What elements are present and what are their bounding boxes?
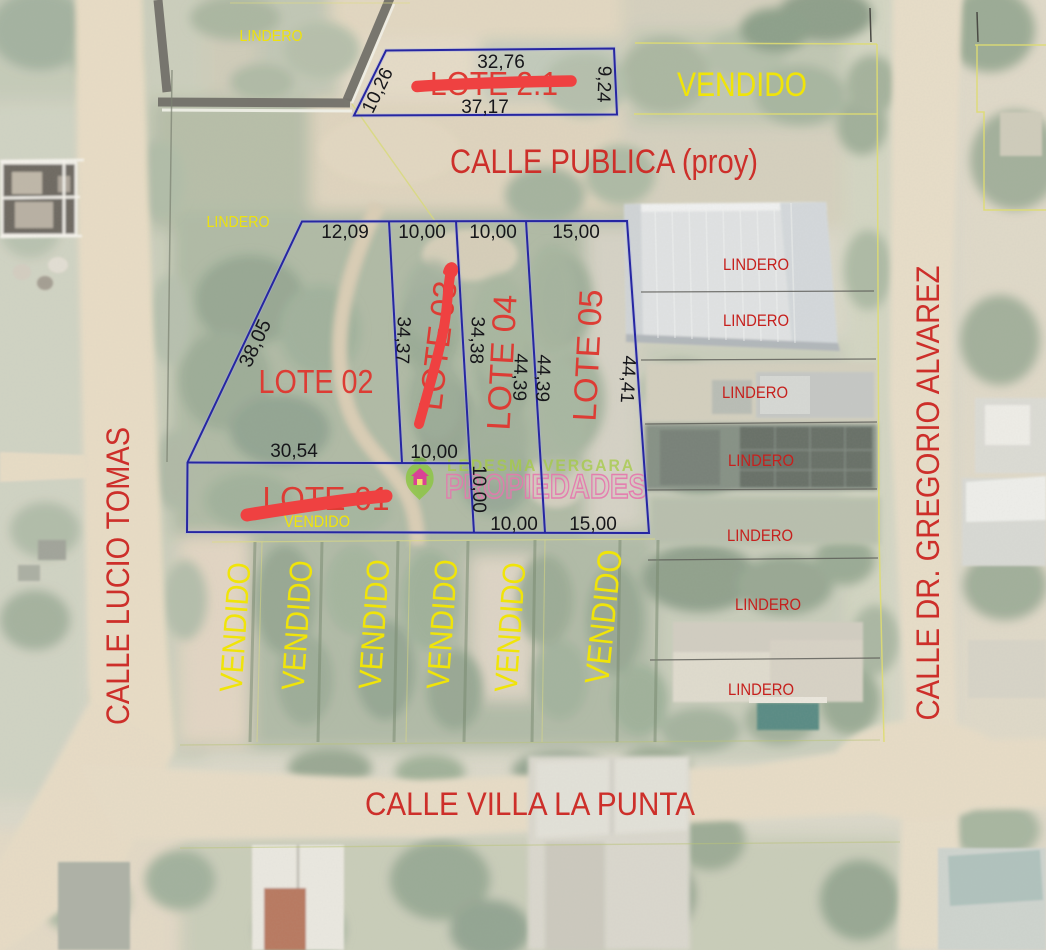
svg-text:CALLE VILLA LA PUNTA: CALLE VILLA LA PUNTA: [365, 786, 696, 822]
svg-text:CALLE PUBLICA (proy): CALLE PUBLICA (proy): [450, 143, 758, 181]
svg-text:LOTE 05: LOTE 05: [566, 289, 610, 423]
svg-text:9,24: 9,24: [592, 65, 614, 103]
svg-text:LINDERO: LINDERO: [735, 595, 801, 614]
svg-text:44,41: 44,41: [616, 355, 639, 404]
svg-text:LOTE 02: LOTE 02: [259, 363, 374, 400]
svg-text:LINDERO: LINDERO: [207, 214, 270, 231]
svg-text:LINDERO: LINDERO: [727, 526, 793, 545]
svg-text:34,37: 34,37: [391, 316, 414, 364]
svg-text:10,00: 10,00: [469, 222, 517, 243]
svg-text:44,39: 44,39: [531, 354, 554, 402]
svg-text:LINDERO: LINDERO: [723, 311, 789, 330]
svg-text:10,00: 10,00: [468, 465, 489, 513]
svg-text:30,54: 30,54: [270, 441, 318, 462]
svg-text:10,00: 10,00: [398, 222, 446, 243]
svg-text:10,00: 10,00: [410, 442, 458, 463]
svg-text:15,00: 15,00: [569, 514, 617, 535]
svg-text:LINDERO: LINDERO: [728, 680, 794, 699]
svg-text:LINDERO: LINDERO: [240, 28, 303, 45]
svg-text:LINDERO: LINDERO: [723, 255, 789, 274]
svg-text:CALLE LUCIO TOMAS: CALLE LUCIO TOMAS: [100, 427, 136, 725]
svg-text:LOTE 04: LOTE 04: [479, 294, 523, 432]
svg-text:CALLE DR. GREGORIO ALVAREZ: CALLE DR. GREGORIO ALVAREZ: [910, 266, 946, 721]
svg-text:LINDERO: LINDERO: [722, 383, 788, 402]
svg-text:10,00: 10,00: [490, 514, 538, 535]
svg-text:VENDIDO: VENDIDO: [677, 66, 807, 104]
svg-text:LINDERO: LINDERO: [728, 451, 794, 470]
svg-text:15,00: 15,00: [552, 222, 600, 243]
svg-text:12,09: 12,09: [321, 222, 369, 243]
svg-text:VENDIDO: VENDIDO: [284, 512, 350, 531]
